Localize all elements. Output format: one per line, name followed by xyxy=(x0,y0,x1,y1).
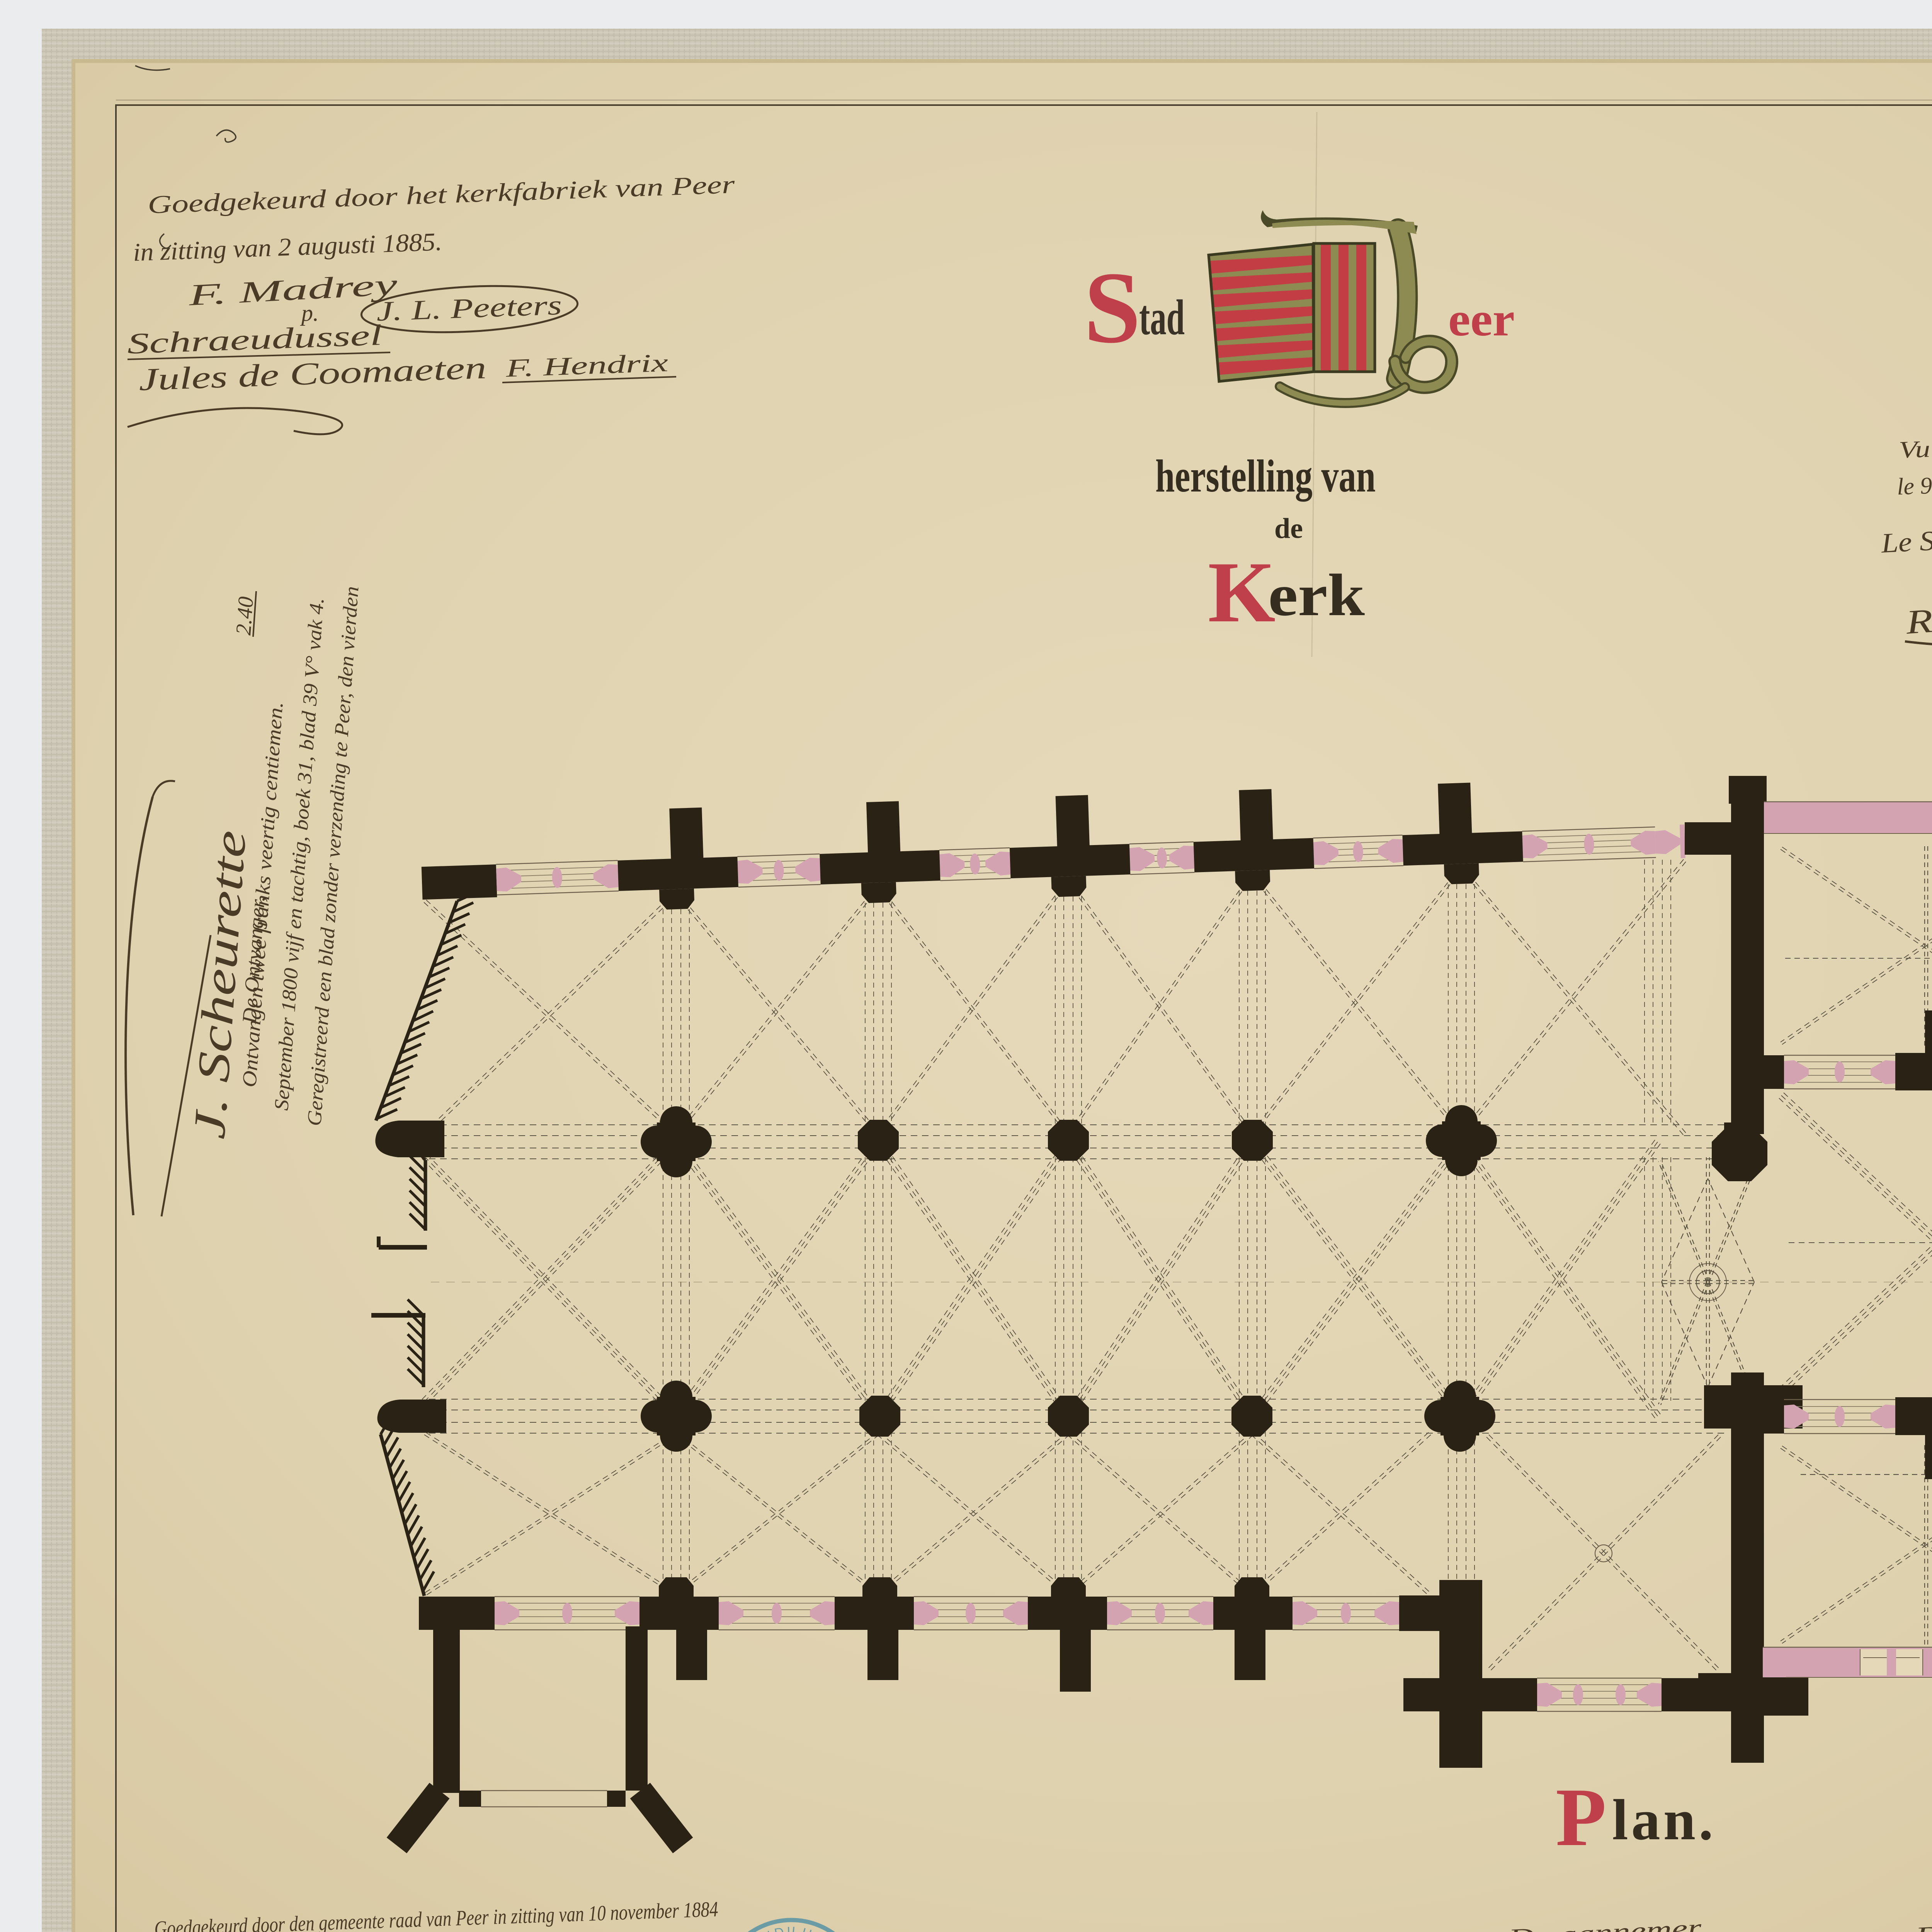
svg-text:S: S xyxy=(1084,251,1141,364)
svg-text:eer: eer xyxy=(1448,293,1515,346)
svg-text:herstelling van: herstelling van xyxy=(1155,450,1376,502)
svg-text:lan.: lan. xyxy=(1612,1788,1716,1852)
svg-text:P: P xyxy=(1556,1771,1606,1863)
svg-text:de: de xyxy=(1274,513,1303,544)
svg-text:erk: erk xyxy=(1268,562,1365,628)
svg-text:K: K xyxy=(1208,544,1276,640)
svg-text:tad: tad xyxy=(1139,290,1185,345)
